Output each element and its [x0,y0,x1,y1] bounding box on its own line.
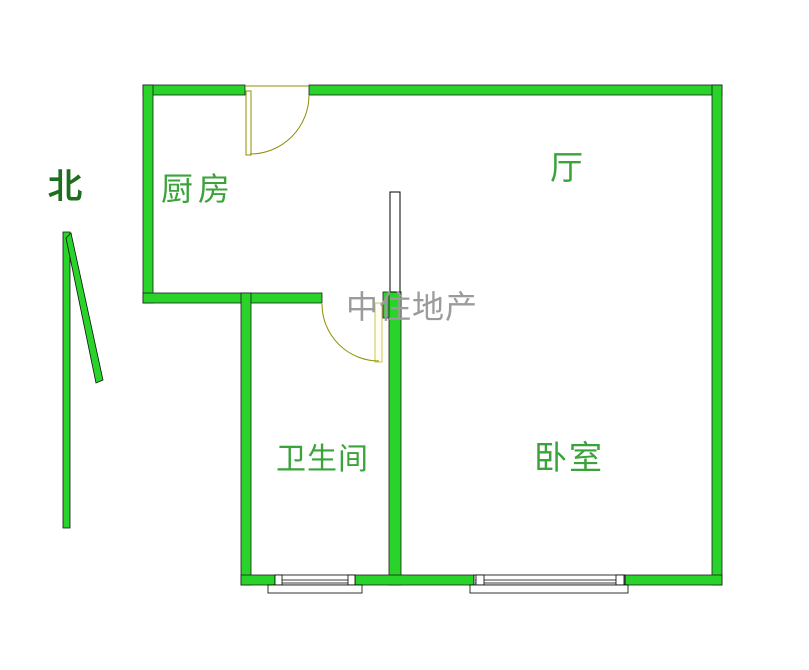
agency-watermark: 中住地产 [346,291,478,323]
bathroom-window-cap-left [275,575,282,585]
north-label: 北 [48,171,82,205]
room-label-bedroom: 卧室 [534,443,604,476]
north-arrow-shaft [63,232,70,528]
kitchen-bottom-wall [143,293,322,303]
bedroom-window-sill [470,585,628,593]
bedroom-window-cap-right [616,575,624,585]
room-label-hall: 厅 [550,153,583,186]
right-wall [712,85,722,585]
kitchen-hall-partition-wall [390,192,400,292]
floor-plan-drawing [0,0,809,670]
room-label-bathroom: 卫生间 [276,445,369,475]
divider-wall [389,292,401,585]
bedroom-window [470,575,628,593]
bottom-wall-right-segment [625,575,722,585]
bathroom-window-cap-right [348,575,355,585]
bathroom-left-wall [241,293,251,585]
north-arrow-icon [63,232,103,528]
kitchen-door-leaf [246,91,251,155]
north-arrow-barb [66,233,103,383]
bathroom-window-sill [268,585,362,593]
bottom-wall-mid-segment [355,575,474,585]
top-wall-left-segment [143,85,245,95]
kitchen-door [245,86,309,155]
top-wall-right-segment [309,85,722,95]
room-label-kitchen: 厨房 [161,173,235,205]
left-wall [143,85,153,303]
floor-plan-canvas: 北 厨房 厅 卫生间 卧室 中住地产 [0,0,809,670]
bottom-wall-left-segment [241,575,275,585]
bedroom-window-cap-left [476,575,484,585]
kitchen-door-swing-arc [250,95,309,154]
bathroom-window [268,575,362,593]
walls [143,85,722,585]
